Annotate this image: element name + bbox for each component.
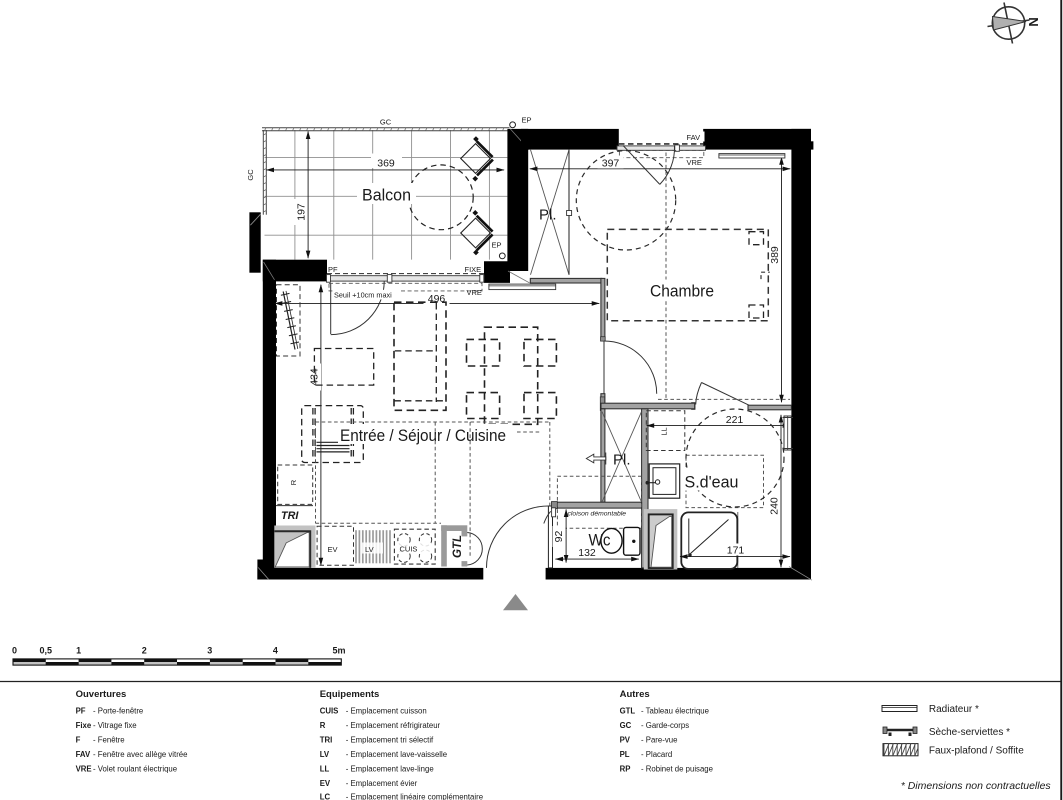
svg-text:Balcon: Balcon xyxy=(362,187,411,205)
svg-text:GC: GC xyxy=(380,118,392,127)
svg-text:- Garde-corps: - Garde-corps xyxy=(641,721,689,730)
svg-text:- Placard: - Placard xyxy=(641,750,672,759)
svg-text:S.d'eau: S.d'eau xyxy=(685,473,739,492)
svg-text:- Emplacement réfrigirateur: - Emplacement réfrigirateur xyxy=(346,721,441,730)
svg-text:EP: EP xyxy=(522,116,532,125)
svg-text:- Emplacement lave-vaisselle: - Emplacement lave-vaisselle xyxy=(346,750,447,759)
svg-text:389: 389 xyxy=(769,246,781,264)
svg-text:LV: LV xyxy=(320,750,330,759)
svg-text:TRI: TRI xyxy=(320,736,333,745)
svg-text:F: F xyxy=(76,736,81,745)
svg-text:PV: PV xyxy=(620,736,631,745)
svg-text:GTL: GTL xyxy=(620,707,636,716)
svg-text:197: 197 xyxy=(295,203,307,221)
svg-text:EP: EP xyxy=(492,241,502,250)
svg-text:- Fenêtre avec allège vitrée: - Fenêtre avec allège vitrée xyxy=(93,750,187,759)
svg-text:PL: PL xyxy=(620,750,630,759)
svg-text:Pl.: Pl. xyxy=(539,207,557,224)
svg-text:Pl.: Pl. xyxy=(613,452,631,469)
svg-text:Ouvertures: Ouvertures xyxy=(76,689,127,700)
svg-text:- Pare-vue: - Pare-vue xyxy=(641,736,677,745)
svg-text:1: 1 xyxy=(76,646,81,656)
svg-text:N: N xyxy=(1026,17,1041,26)
svg-text:- Tableau électrique: - Tableau électrique xyxy=(641,707,709,716)
svg-text:3: 3 xyxy=(207,646,212,656)
svg-text:240: 240 xyxy=(769,497,781,515)
svg-text:FAV: FAV xyxy=(76,750,91,759)
svg-text:- Fenêtre: - Fenêtre xyxy=(93,736,125,745)
svg-text:LL: LL xyxy=(320,765,330,774)
svg-text:- Emplacement évier: - Emplacement évier xyxy=(346,779,418,788)
svg-text:VRE: VRE xyxy=(687,158,702,167)
svg-text:CUIS: CUIS xyxy=(320,707,339,716)
svg-text:FAV: FAV xyxy=(687,133,701,142)
svg-text:369: 369 xyxy=(377,158,395,170)
svg-text:PF: PF xyxy=(328,265,338,274)
svg-text:CUIS: CUIS xyxy=(400,545,418,554)
svg-text:LC: LC xyxy=(320,793,331,800)
svg-text:cloison démontable: cloison démontable xyxy=(568,510,627,517)
svg-text:171: 171 xyxy=(727,545,745,557)
svg-text:92: 92 xyxy=(553,531,565,543)
svg-text:Equipements: Equipements xyxy=(320,689,380,700)
svg-text:0: 0 xyxy=(12,646,17,656)
svg-text:* Dimensions non contractuelle: * Dimensions non contractuelles xyxy=(901,780,1052,792)
svg-text:221: 221 xyxy=(726,414,744,426)
svg-text:Fixe: Fixe xyxy=(76,721,92,730)
svg-text:GC: GC xyxy=(246,169,255,181)
svg-text:397: 397 xyxy=(602,157,620,169)
svg-text:- Emplacement lave-linge: - Emplacement lave-linge xyxy=(346,765,434,774)
svg-text:VRE: VRE xyxy=(467,288,482,297)
svg-text:2: 2 xyxy=(142,646,147,656)
svg-text:- Robinet de puisage: - Robinet de puisage xyxy=(641,765,713,774)
svg-text:LL: LL xyxy=(659,427,668,435)
svg-text:LV: LV xyxy=(365,545,374,554)
svg-text:- Emplacement tri sélectif: - Emplacement tri sélectif xyxy=(346,736,434,745)
svg-text:Radiateur *: Radiateur * xyxy=(929,704,979,715)
svg-text:GC: GC xyxy=(620,721,632,730)
svg-text:R: R xyxy=(289,479,298,485)
svg-text:Faux-plafond / Soffite: Faux-plafond / Soffite xyxy=(929,745,1024,756)
svg-text:EV: EV xyxy=(328,545,338,554)
svg-text:5m: 5m xyxy=(332,646,345,656)
svg-text:- Vitrage fixe: - Vitrage fixe xyxy=(93,721,137,730)
svg-text:0,5: 0,5 xyxy=(40,646,53,656)
svg-text:VRE: VRE xyxy=(76,765,92,774)
svg-text:EV: EV xyxy=(320,779,331,788)
svg-text:TRI: TRI xyxy=(281,510,299,522)
svg-text:- Emplacement linéaire complém: - Emplacement linéaire complémentaire xyxy=(346,793,483,800)
svg-text:Autres: Autres xyxy=(620,689,650,700)
svg-text:- Porte-fenêtre: - Porte-fenêtre xyxy=(93,707,143,716)
svg-text:4: 4 xyxy=(273,646,278,656)
svg-text:RP: RP xyxy=(620,765,631,774)
svg-text:GTL: GTL xyxy=(452,535,464,558)
svg-text:FIXE: FIXE xyxy=(465,265,482,274)
svg-text:R: R xyxy=(320,721,326,730)
svg-text:Seuil +10cm maxi: Seuil +10cm maxi xyxy=(334,291,392,300)
svg-text:Chambre: Chambre xyxy=(650,281,714,300)
svg-text:PF: PF xyxy=(76,707,86,716)
svg-text:Wc: Wc xyxy=(589,532,611,550)
svg-text:- Volet roulant électrique: - Volet roulant électrique xyxy=(93,765,177,774)
svg-text:Entrée / Séjour / Cuisine: Entrée / Séjour / Cuisine xyxy=(340,426,506,445)
svg-text:Sèche-serviettes *: Sèche-serviettes * xyxy=(929,727,1010,738)
svg-text:- Emplacement cuisson: - Emplacement cuisson xyxy=(346,707,427,716)
